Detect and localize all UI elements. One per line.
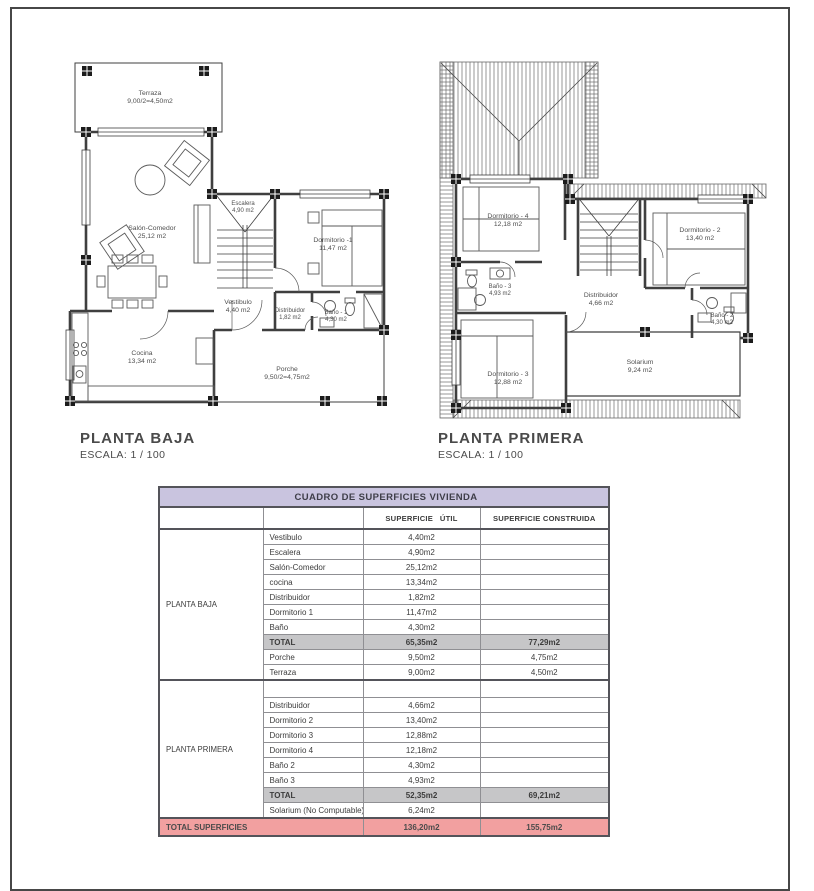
sofa [194, 205, 210, 263]
cell-util: 4,93m2 [363, 773, 480, 788]
room-area: 1,82 m2 [279, 315, 301, 321]
cell-construida: 77,29m2 [480, 635, 609, 650]
cell-name: Dormitorio 3 [263, 728, 363, 743]
caption-planta-baja: PLANTA BAJA ESCALA: 1 / 100 [80, 430, 195, 462]
room-area: 4,40 m2 [226, 307, 251, 314]
roof-hatch [440, 62, 766, 418]
room-area: 9,00/2=4,50m2 [127, 98, 173, 105]
cell-name: Porche [263, 650, 363, 665]
floor-label: PLANTA BAJA [159, 529, 263, 680]
cell-name: Salón-Comedor [263, 560, 363, 575]
cell-construida [480, 590, 609, 605]
room-label: Dormitorio - 2 [679, 227, 720, 234]
room-area: 11,47 m2 [319, 245, 347, 252]
cell-util: 6,24m2 [363, 803, 480, 819]
table-row: PLANTA BAJAVestibulo4,40m2 [159, 529, 609, 545]
room-label: Dormitorio -1 [313, 237, 352, 244]
room-area: 4,66 m2 [589, 300, 614, 307]
header-superficie-construida: SUPERFICIE CONSTRUIDA [480, 507, 609, 529]
room-area: 12,18 m2 [494, 221, 523, 228]
cell-construida [480, 575, 609, 590]
grand-total-label: TOTAL SUPERFICIES [159, 818, 363, 836]
cell-construida [480, 698, 609, 713]
cell-util: 4,30m2 [363, 620, 480, 635]
cell-util: 13,40m2 [363, 713, 480, 728]
room-label: Baño - 2 [711, 313, 734, 319]
header-superficie-util: SUPERFICIE ÚTIL [363, 507, 480, 529]
room-area: 13,34 m2 [128, 358, 157, 365]
room-area: 12,88 m2 [494, 379, 523, 386]
plan-planta-primera: Dormitorio - 4 12,18 m2 Dormitorio - 2 1… [440, 62, 766, 418]
cell-util: 52,35m2 [363, 788, 480, 803]
cell-name: TOTAL [263, 788, 363, 803]
cell-util: 65,35m2 [363, 635, 480, 650]
surfaces-table: CUADRO DE SUPERFICIES VIVIENDA SUPERFICI… [158, 486, 610, 837]
cell-name: TOTAL [263, 635, 363, 650]
cell-construida [480, 758, 609, 773]
table-title: CUADRO DE SUPERFICIES VIVIENDA [159, 487, 609, 507]
plan-scale: ESCALA: 1 / 100 [438, 449, 585, 462]
cell-name: Terraza [263, 665, 363, 681]
grand-total-construida: 155,75m2 [480, 818, 609, 836]
cell-construida [480, 529, 609, 545]
cell-name: Distribuidor [263, 590, 363, 605]
cell-util: 4,40m2 [363, 529, 480, 545]
cell-util: 1,82m2 [363, 590, 480, 605]
cell-util: 4,90m2 [363, 545, 480, 560]
cell-name: Baño 3 [263, 773, 363, 788]
plan-title: PLANTA PRIMERA [438, 430, 585, 449]
cell-name: Baño 2 [263, 758, 363, 773]
room-label: Porche [276, 366, 298, 373]
room-label: Vestibulo [224, 299, 252, 306]
grand-total-row: TOTAL SUPERFICIES 136,20m2 155,75m2 [159, 818, 609, 836]
room-label: Baño - 1 [325, 310, 348, 316]
cell-construida [480, 545, 609, 560]
cell-name: Vestibulo [263, 529, 363, 545]
cell-construida [480, 560, 609, 575]
cell-util: 4,30m2 [363, 758, 480, 773]
table-header-row: SUPERFICIE ÚTIL SUPERFICIE CONSTRUIDA [159, 507, 609, 529]
cell-util: 11,47m2 [363, 605, 480, 620]
cell-construida [480, 605, 609, 620]
room-label: Salón-Comedor [128, 225, 176, 232]
cell-name: Dormitorio 4 [263, 743, 363, 758]
cell-construida: 4,50m2 [480, 665, 609, 681]
cell-name: Distribuidor [263, 698, 363, 713]
plan-scale: ESCALA: 1 / 100 [80, 449, 195, 462]
room-area: 4,30 m2 [325, 317, 347, 323]
walls [70, 132, 384, 402]
cell-util: 12,88m2 [363, 728, 480, 743]
room-label: Dormitorio - 4 [487, 213, 528, 220]
dining-table [97, 255, 167, 308]
cell-construida [480, 803, 609, 819]
header-empty-2 [263, 507, 363, 529]
porche-outline [214, 330, 384, 402]
room-area: 9,50/2=4,75m2 [264, 374, 310, 381]
table-row: PLANTA PRIMERA [159, 680, 609, 698]
room-label: Distribuidor [584, 292, 619, 299]
caption-planta-primera: PLANTA PRIMERA ESCALA: 1 / 100 [438, 430, 585, 462]
kitchen-fixtures [72, 313, 214, 401]
room-area: 4,93 m2 [489, 291, 511, 297]
room-area: 25,12 m2 [138, 233, 167, 240]
cell-construida: 4,75m2 [480, 650, 609, 665]
sofa-angled [165, 141, 210, 186]
bed-dormitorio-2 [653, 213, 745, 285]
room-area: 9,24 m2 [628, 367, 653, 374]
cell-name [263, 680, 363, 698]
cell-util: 4,66m2 [363, 698, 480, 713]
plan-planta-baja: Terraza 9,00/2=4,50m2 Salón-Comedor 25,1… [65, 63, 389, 406]
cell-construida: 69,21m2 [480, 788, 609, 803]
cell-util: 13,34m2 [363, 575, 480, 590]
column-markers [65, 66, 389, 406]
cell-name: Dormitorio 1 [263, 605, 363, 620]
room-area: 4,90 m2 [232, 208, 254, 214]
room-label: Terraza [139, 90, 162, 97]
room-area: 13,40 m2 [686, 235, 715, 242]
cell-construida [480, 680, 609, 698]
room-label: Dormitorio - 3 [487, 371, 528, 378]
cell-construida [480, 743, 609, 758]
table-title-row: CUADRO DE SUPERFICIES VIVIENDA [159, 487, 609, 507]
cell-util: 9,00m2 [363, 665, 480, 681]
room-label: Solarium [627, 359, 654, 366]
cell-name: Dormitorio 2 [263, 713, 363, 728]
room-label: Distribuidor [275, 308, 305, 314]
cell-util: 25,12m2 [363, 560, 480, 575]
cell-name: Solarium (No Computable) [263, 803, 363, 819]
room-label: Cocina [131, 350, 152, 357]
cell-util: 9,50m2 [363, 650, 480, 665]
surfaces-table-wrap: CUADRO DE SUPERFICIES VIVIENDA SUPERFICI… [158, 486, 610, 837]
room-area: 4,30 m2 [711, 320, 733, 326]
drawing-sheet: Terraza 9,00/2=4,50m2 Salón-Comedor 25,1… [0, 0, 814, 812]
floor-label: PLANTA PRIMERA [159, 680, 263, 818]
windows [452, 175, 744, 385]
room-label: Baño - 3 [489, 284, 512, 290]
cell-construida [480, 728, 609, 743]
stairs [580, 200, 638, 276]
plan-title: PLANTA BAJA [80, 430, 195, 449]
cell-util: 12,18m2 [363, 743, 480, 758]
cell-name: cocina [263, 575, 363, 590]
header-empty-1 [159, 507, 263, 529]
cell-construida [480, 773, 609, 788]
cell-construida [480, 620, 609, 635]
room-label: Escalera [231, 201, 255, 207]
cell-name: Baño [263, 620, 363, 635]
bed-dormitorio-3 [461, 320, 533, 398]
grand-total-util: 136,20m2 [363, 818, 480, 836]
cell-util [363, 680, 480, 698]
cell-construida [480, 713, 609, 728]
cell-name: Escalera [263, 545, 363, 560]
